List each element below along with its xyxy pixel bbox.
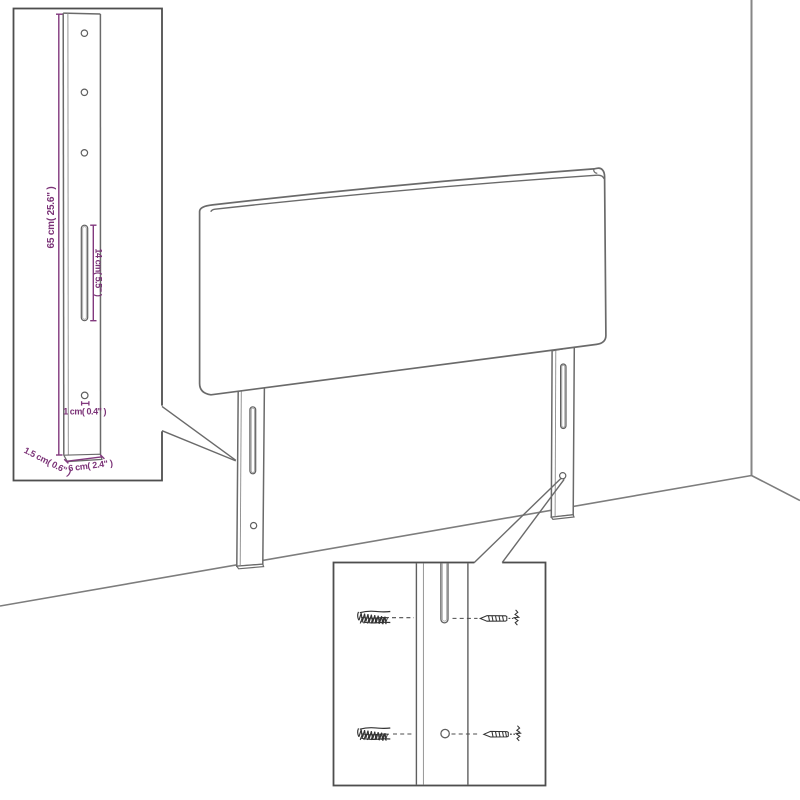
svg-text:14 cm( 5.5" ): 14 cm( 5.5" )	[94, 248, 104, 296]
svg-text:1 cm( 0.4" ): 1 cm( 0.4" )	[63, 407, 106, 417]
svg-text:65 cm( 25.6" ): 65 cm( 25.6" )	[46, 187, 57, 249]
